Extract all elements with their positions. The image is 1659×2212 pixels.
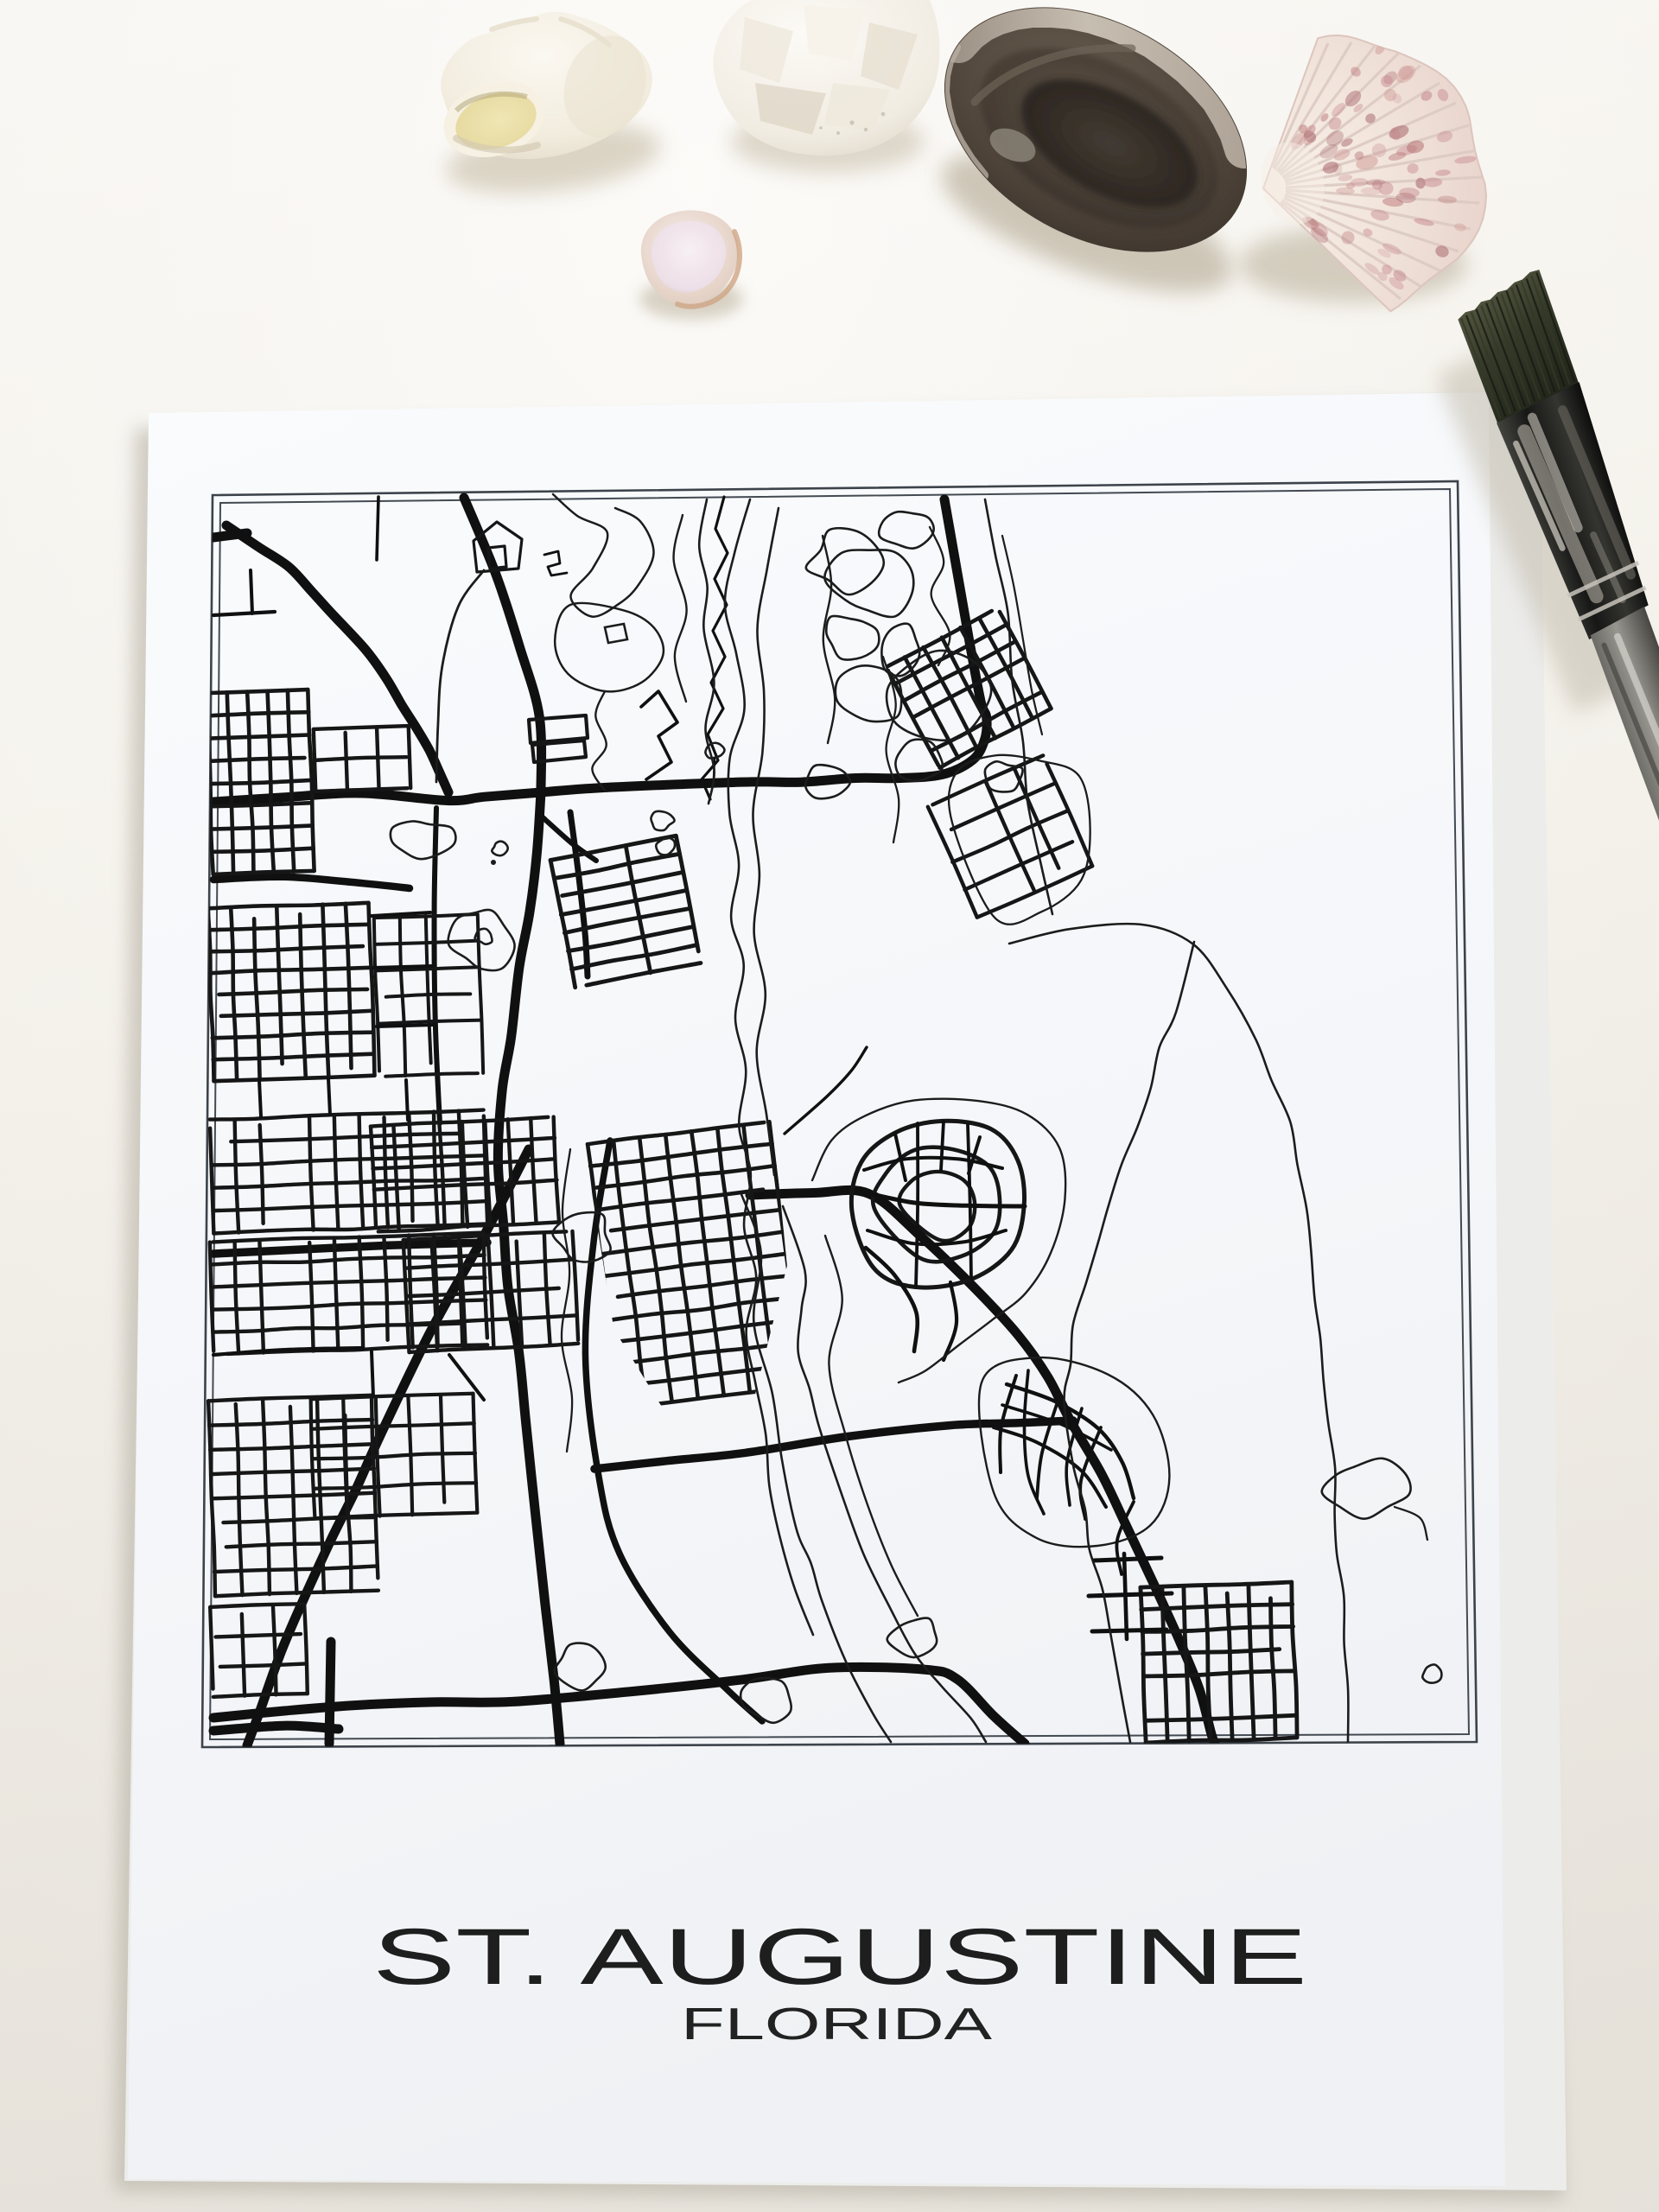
svg-text:FLORIDA: FLORIDA [681, 1999, 992, 2050]
svg-text:ST. AUGUSTINE: ST. AUGUSTINE [372, 1913, 1307, 2001]
